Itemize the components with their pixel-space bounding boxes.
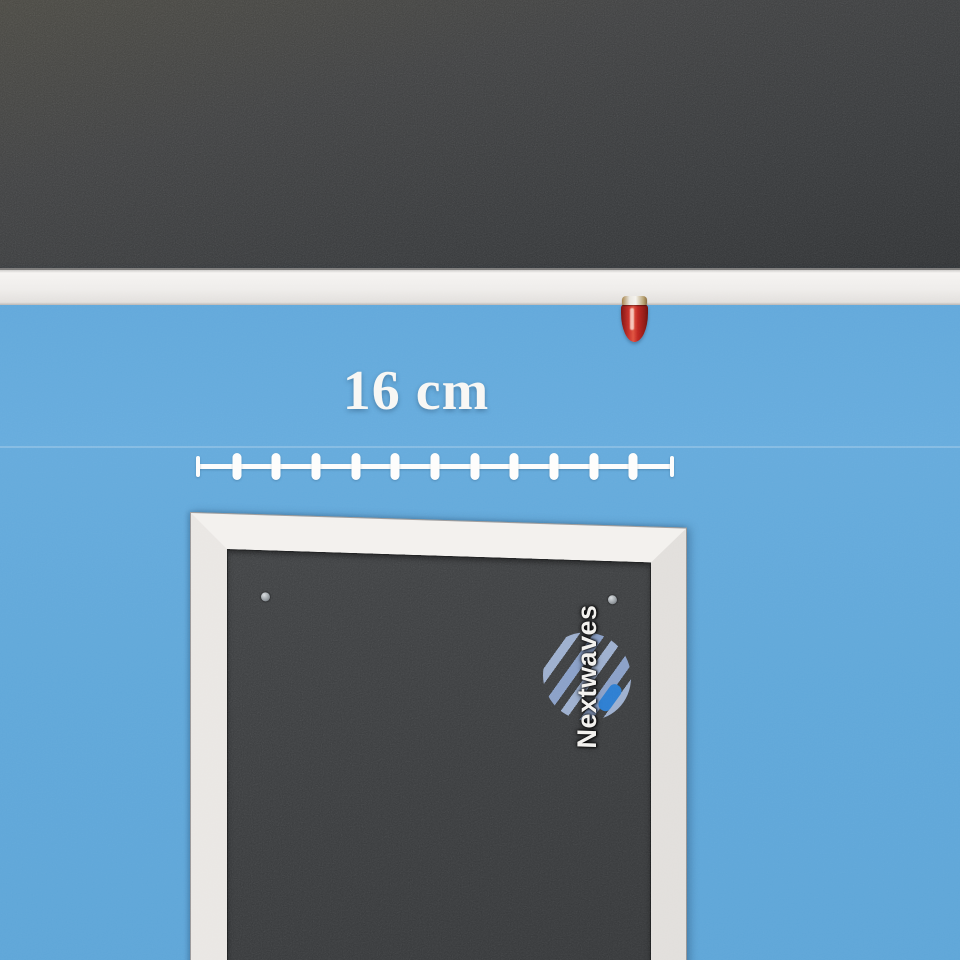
ruler-ticks: [197, 450, 673, 482]
nextwaves-logo: Nextwaves: [543, 631, 631, 722]
ruler-tick: [510, 453, 519, 480]
ruler-tick: [470, 453, 479, 480]
red-pin-metal-cap: [622, 296, 647, 305]
red-pin-body: [621, 304, 648, 342]
notice-board: Nextwaves: [190, 512, 687, 960]
ruler-tick: [629, 453, 638, 480]
wall-rail: [0, 268, 960, 305]
ruler-tick: [232, 453, 241, 480]
ruler-tick: [589, 453, 598, 480]
screw-left: [261, 592, 270, 601]
ruler-tick: [312, 453, 321, 480]
ruler-tick: [550, 453, 559, 480]
measurement-ruler: [197, 450, 673, 482]
red-pin: [621, 296, 648, 342]
ruler-tick: [272, 453, 281, 480]
red-pin-highlight: [630, 308, 634, 330]
product-photo: 16 cm Nextwaves: [0, 0, 960, 960]
ruler-tick: [391, 453, 400, 480]
logo-text: Nextwaves: [572, 601, 602, 752]
board-felt: Nextwaves: [227, 549, 651, 960]
felt-texture: [0, 0, 960, 268]
dimension-label: 16 cm: [336, 363, 496, 419]
ruler-tick: [351, 453, 360, 480]
felt-panel-top: [0, 0, 960, 268]
ruler-tick: [431, 453, 440, 480]
screw-right: [608, 595, 617, 604]
